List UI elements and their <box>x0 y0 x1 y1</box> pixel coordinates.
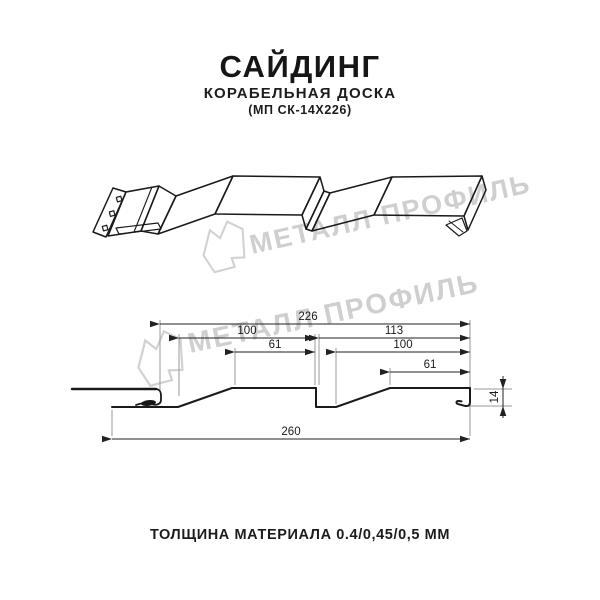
product-diagram-page: САЙДИНГ КОРАБЕЛЬНАЯ ДОСКА (МП СК-14Х226) <box>0 0 600 600</box>
panel-profile <box>112 388 470 407</box>
lock-curl <box>141 399 157 407</box>
dim-label-61-right: 61 <box>424 359 437 371</box>
watermark-brand-text: МЕТАЛЛ ПРОФИЛЬ <box>185 267 482 359</box>
dim-label-100-right: 100 <box>393 339 412 351</box>
thickness-note: ТОЛЩИНА МАТЕРИАЛА 0.4/0,45/0,5 ММ <box>0 527 600 543</box>
dim-label-260: 260 <box>281 426 300 438</box>
dim-label-226: 226 <box>298 311 317 323</box>
technical-drawing: МЕТАЛЛ ПРОФИЛЬ МЕТАЛЛ ПРОФИЛЬ <box>0 0 600 600</box>
dim-label-14: 14 <box>489 390 501 403</box>
dim-label-100-left: 100 <box>237 325 256 337</box>
brand-logo-icon <box>198 219 250 274</box>
dim-label-61-left: 61 <box>269 339 282 351</box>
profile-outline <box>72 388 470 407</box>
dim-label-113: 113 <box>385 325 403 337</box>
